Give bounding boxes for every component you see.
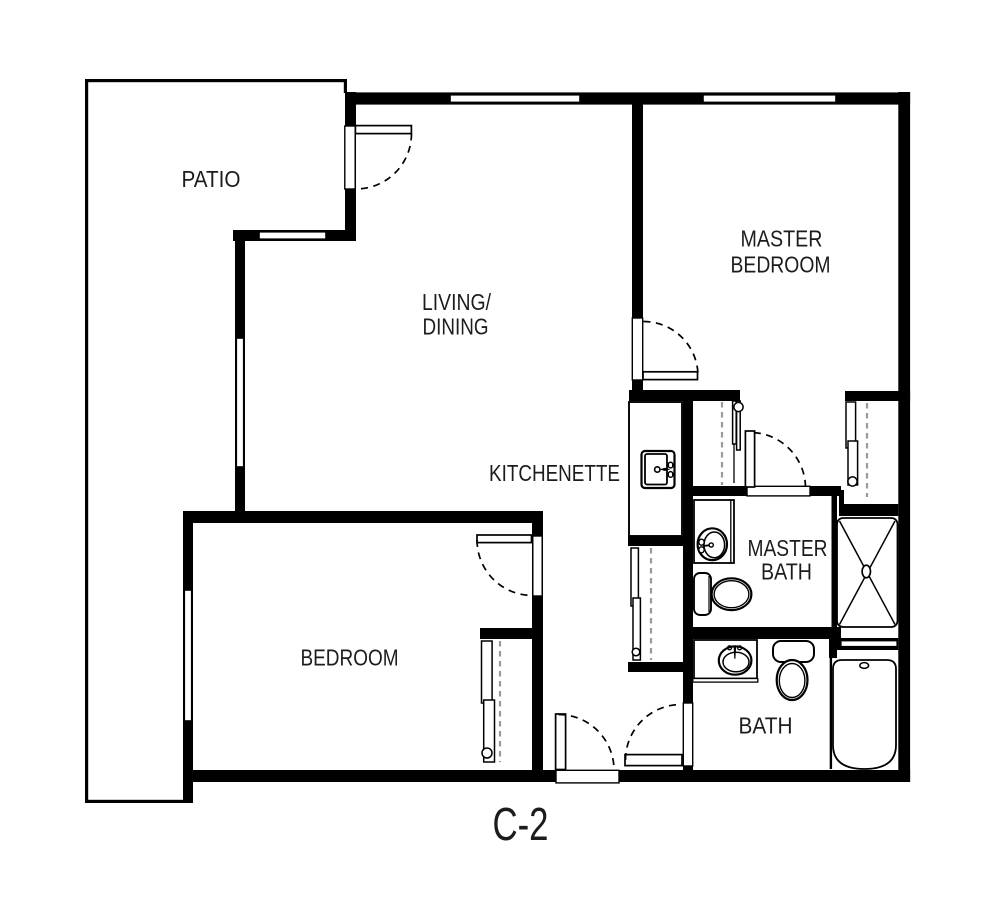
- svg-text:BATH: BATH: [739, 712, 793, 738]
- svg-text:PATIO: PATIO: [182, 166, 241, 192]
- svg-text:DINING: DINING: [423, 314, 489, 340]
- svg-text:C-2: C-2: [493, 798, 549, 850]
- svg-text:MASTER: MASTER: [741, 226, 823, 252]
- svg-text:LIVING/: LIVING/: [422, 289, 492, 315]
- svg-text:KITCHENETTE: KITCHENETTE: [489, 460, 620, 486]
- svg-text:BEDROOM: BEDROOM: [301, 644, 399, 670]
- svg-text:MASTER: MASTER: [748, 535, 828, 561]
- svg-text:BEDROOM: BEDROOM: [731, 251, 831, 277]
- svg-text:BATH: BATH: [761, 559, 812, 585]
